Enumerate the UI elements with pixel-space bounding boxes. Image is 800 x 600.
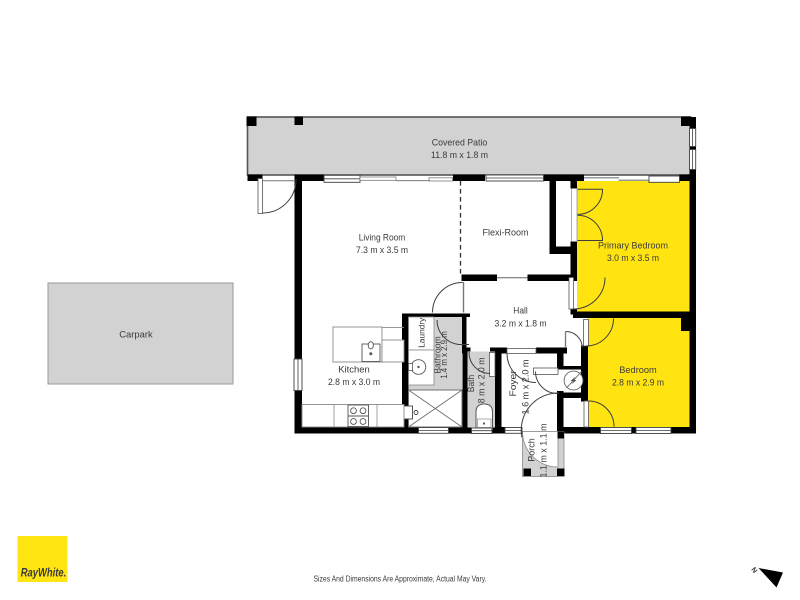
svg-text:1.6 m x 2.0 m: 1.6 m x 2.0 m <box>521 359 531 414</box>
svg-text:Bath: Bath <box>466 375 476 393</box>
svg-text:Sizes And Dimensions Are Appro: Sizes And Dimensions Are Approximate, Ac… <box>314 574 487 583</box>
svg-text:Covered Patio: Covered Patio <box>432 138 488 148</box>
svg-text:Laundry: Laundry <box>417 317 427 348</box>
svg-text:0.8 m x 2.0 m: 0.8 m x 2.0 m <box>477 357 487 410</box>
svg-text:Carpark: Carpark <box>119 330 153 340</box>
svg-text:Porch: Porch <box>527 438 537 462</box>
svg-text:Kitchen: Kitchen <box>338 365 370 375</box>
svg-text:Flexi-Room: Flexi-Room <box>483 228 529 238</box>
svg-text:2.8 m x 2.9 m: 2.8 m x 2.9 m <box>612 378 664 388</box>
svg-text:Primary Bedroom: Primary Bedroom <box>598 241 668 251</box>
svg-text:3.2 m x 1.8 m: 3.2 m x 1.8 m <box>495 318 547 328</box>
svg-text:3.0 m x 3.5 m: 3.0 m x 3.5 m <box>607 253 659 263</box>
svg-text:2.8 m x 3.0 m: 2.8 m x 3.0 m <box>328 377 380 387</box>
svg-text:Hall: Hall <box>513 306 528 316</box>
svg-text:11.8 m x 1.8 m: 11.8 m x 1.8 m <box>431 150 488 160</box>
svg-text:1.4 m x 2.9 m: 1.4 m x 2.9 m <box>439 331 449 379</box>
svg-text:Living Room: Living Room <box>359 232 406 242</box>
svg-text:Foyer: Foyer <box>508 371 518 397</box>
svg-text:1.1 m x 1.1 m: 1.1 m x 1.1 m <box>539 423 549 477</box>
svg-text:RayWhite.: RayWhite. <box>21 566 67 580</box>
svg-text:7.3 m x 3.5 m: 7.3 m x 3.5 m <box>356 245 408 255</box>
svg-text:Bedroom: Bedroom <box>619 365 657 375</box>
